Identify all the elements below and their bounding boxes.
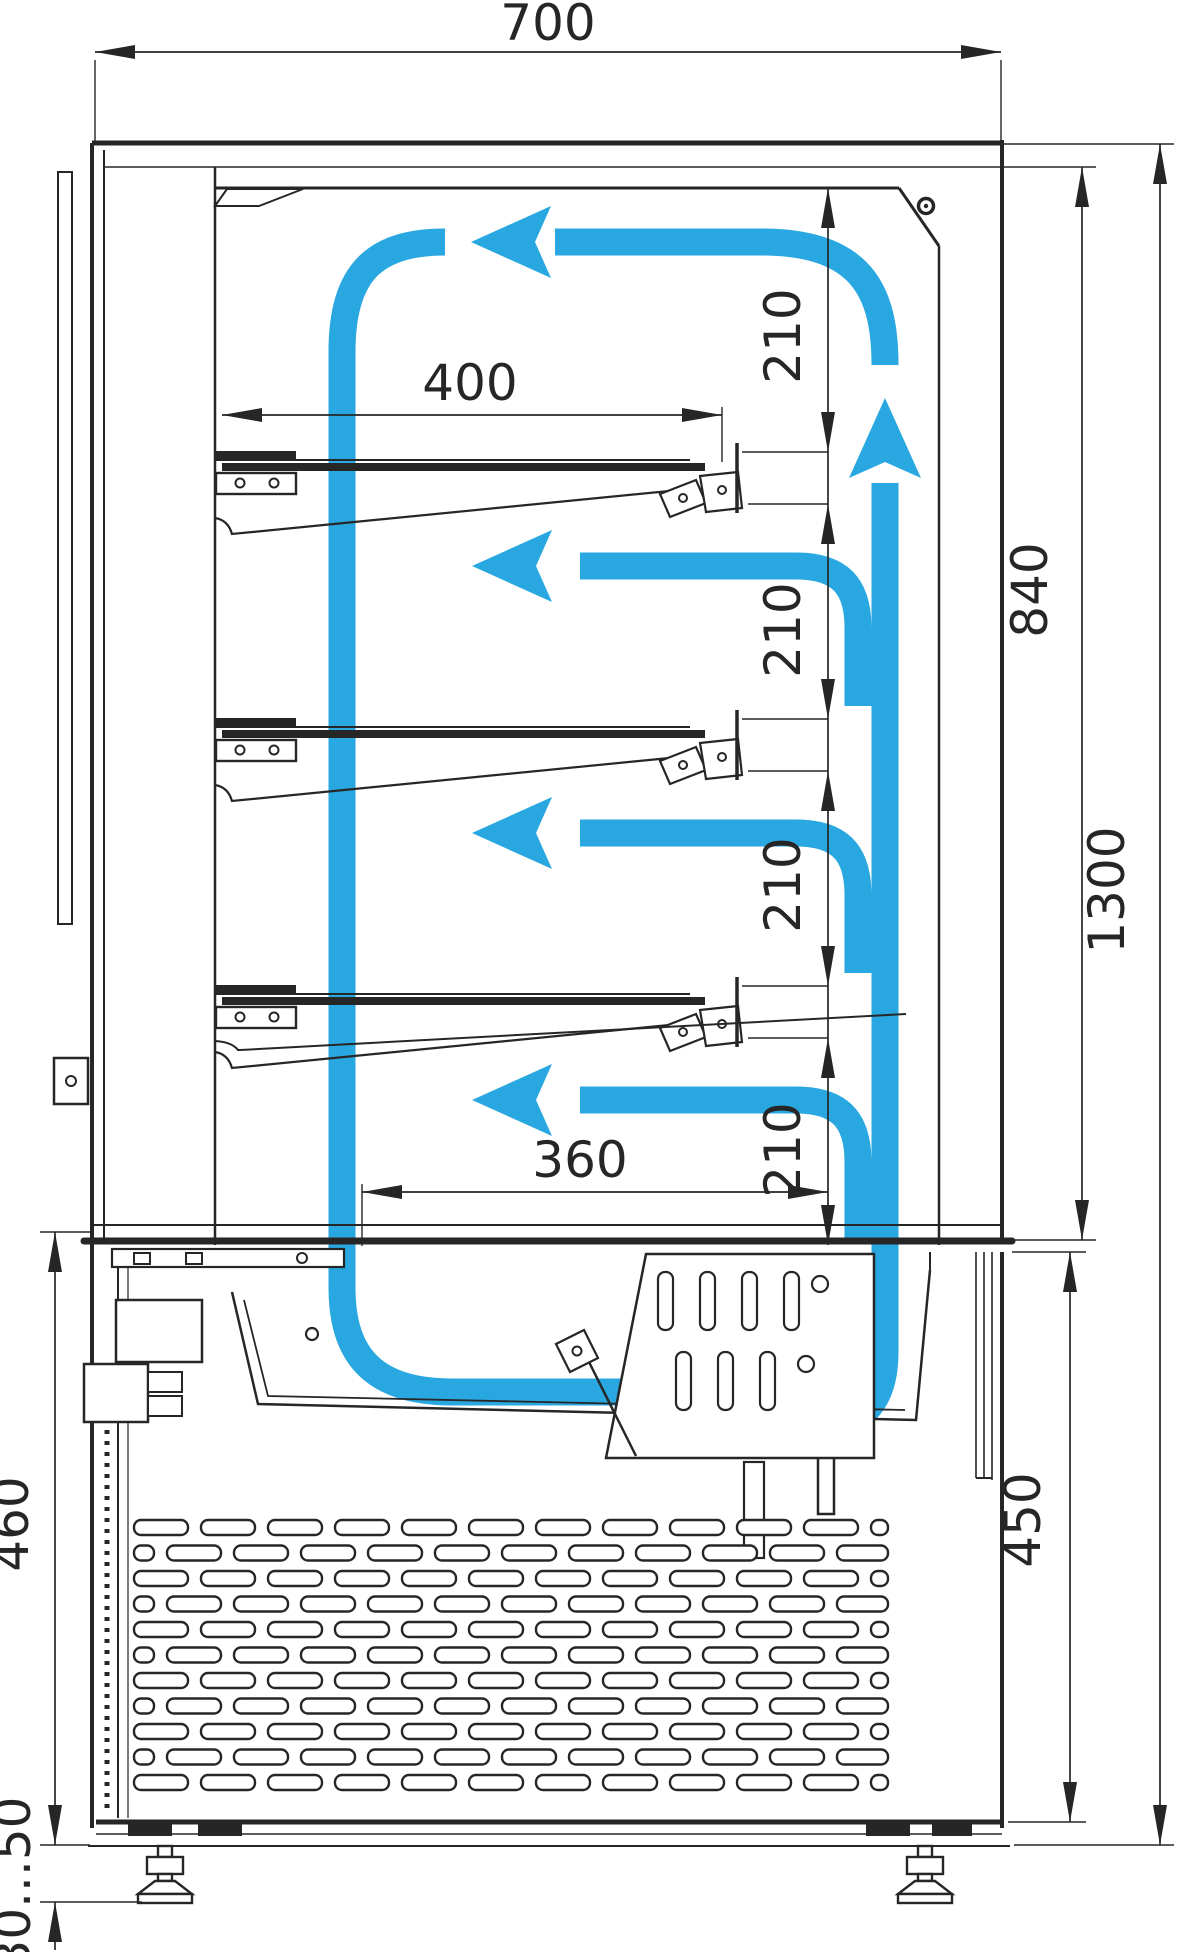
shroud-slot <box>658 1272 673 1330</box>
front-glass-chamfer <box>899 188 939 246</box>
grille-louver <box>301 1546 355 1561</box>
grille-louver <box>368 1597 422 1612</box>
grille-louver <box>703 1750 757 1765</box>
grille-louver <box>804 1622 858 1637</box>
shroud-slot <box>700 1272 715 1330</box>
grille-louver <box>670 1622 724 1637</box>
grille-louver <box>335 1520 389 1535</box>
dim-450-label: 450 <box>994 1472 1052 1567</box>
grille-louver <box>703 1546 757 1561</box>
shelf-3 <box>214 977 742 1068</box>
grille-louver <box>737 1775 791 1790</box>
grille-louver <box>268 1520 322 1535</box>
grille-louver <box>871 1520 888 1535</box>
base-screw-icon <box>306 1328 318 1340</box>
grille-louver <box>335 1775 389 1790</box>
grille-louver <box>670 1571 724 1586</box>
grille-louver <box>335 1622 389 1637</box>
grille-louver <box>469 1622 523 1637</box>
grille-louver <box>703 1699 757 1714</box>
grille-louver <box>368 1648 422 1663</box>
grille-louver <box>502 1699 556 1714</box>
grille-louver <box>368 1546 422 1561</box>
grille-louver <box>134 1597 154 1612</box>
ventilation-grille <box>134 1520 888 1790</box>
machinery-base <box>84 1249 1010 1903</box>
grille-louver <box>402 1775 456 1790</box>
grille-louver <box>134 1775 188 1790</box>
grille-louver <box>201 1571 255 1586</box>
ceiling-lamp-cover <box>215 189 303 206</box>
grille-louver <box>804 1775 858 1790</box>
grille-louver <box>670 1673 724 1688</box>
grille-louver <box>703 1597 757 1612</box>
grille-louver <box>402 1520 456 1535</box>
grille-louver <box>435 1699 489 1714</box>
grille-louver <box>134 1520 188 1535</box>
grille-louver <box>335 1724 389 1739</box>
grille-louver <box>469 1571 523 1586</box>
grille-louver <box>603 1724 657 1739</box>
dim-210-label-2: 210 <box>754 582 812 677</box>
clamp-screw-icon <box>718 486 726 494</box>
grille-louver <box>737 1673 791 1688</box>
adjustable-foot-left <box>138 1846 192 1903</box>
foot-mount-plate <box>932 1824 972 1836</box>
grille-louver <box>837 1699 888 1714</box>
grille-louver <box>201 1775 255 1790</box>
strut-clip-hole <box>573 1347 582 1356</box>
dim-210-label-1: 210 <box>754 288 812 383</box>
grille-louver <box>536 1520 590 1535</box>
grille-louver <box>536 1571 590 1586</box>
shroud-slot <box>718 1352 733 1410</box>
grille-louver <box>636 1546 690 1561</box>
grille-louver <box>435 1597 489 1612</box>
shroud-hole <box>812 1276 828 1292</box>
grille-louver <box>335 1673 389 1688</box>
grille-louver <box>569 1699 623 1714</box>
bracket-tab <box>134 1253 150 1264</box>
airflow-shelf1-branch <box>580 566 858 706</box>
grille-louver <box>636 1597 690 1612</box>
bracket-hole <box>236 479 245 488</box>
grille-louver <box>201 1673 255 1688</box>
airflow-riser-up-arrow-icon <box>849 398 921 478</box>
shroud-leg <box>744 1462 764 1558</box>
grille-louver <box>737 1622 791 1637</box>
grille-louver <box>871 1571 888 1586</box>
shelf-rear-tab <box>214 985 296 994</box>
airflow-top-arrow-icon <box>471 206 551 278</box>
grille-louver <box>469 1520 523 1535</box>
grille-louver <box>670 1520 724 1535</box>
airflow-shelf2-branch <box>580 833 858 973</box>
shelf-1 <box>214 443 742 534</box>
grille-louver <box>201 1724 255 1739</box>
clamp-screw-icon <box>679 761 687 769</box>
grille-louver <box>603 1520 657 1535</box>
grille-louver <box>167 1597 221 1612</box>
thermostat-box <box>116 1300 202 1362</box>
grille-louver <box>435 1648 489 1663</box>
dim-700: 700 <box>95 0 1001 143</box>
grille-louver <box>368 1699 422 1714</box>
clamp-screw-icon <box>679 1028 687 1036</box>
front-corner-screw-center <box>924 204 928 208</box>
valve-port <box>148 1372 182 1392</box>
grille-louver <box>603 1622 657 1637</box>
grille-louver <box>201 1622 255 1637</box>
bracket-hole <box>270 746 279 755</box>
dim-840-label: 840 <box>1001 542 1059 637</box>
grille-louver <box>804 1724 858 1739</box>
dim-450: 450 <box>994 1252 1086 1822</box>
grille-louver <box>502 1648 556 1663</box>
grille-louver <box>201 1520 255 1535</box>
bracket-hole <box>236 1013 245 1022</box>
grille-louver <box>569 1750 623 1765</box>
foot-mount-plate <box>128 1824 172 1836</box>
dim-460: 460 <box>0 1232 94 1845</box>
grille-louver <box>871 1724 888 1739</box>
grille-louver <box>134 1648 154 1663</box>
grille-louver <box>234 1597 288 1612</box>
grille-louver <box>368 1750 422 1765</box>
shelf-2 <box>214 710 742 801</box>
grille-louver <box>804 1673 858 1688</box>
grille-louver <box>871 1622 888 1637</box>
grille-louver <box>536 1622 590 1637</box>
foot-mount-plate <box>866 1824 910 1836</box>
shroud-slot <box>760 1352 775 1410</box>
grille-louver <box>837 1546 888 1561</box>
grille-louver <box>770 1597 824 1612</box>
bracket-tab <box>186 1253 202 1264</box>
grille-louver <box>268 1775 322 1790</box>
shelf-bracket <box>216 740 296 761</box>
grille-louver <box>469 1775 523 1790</box>
grille-louver <box>770 1750 824 1765</box>
grille-louver <box>402 1724 456 1739</box>
rear-cladding-panel <box>58 172 72 924</box>
grille-louver <box>402 1571 456 1586</box>
grille-louver <box>737 1520 791 1535</box>
shelf-rear-tab <box>214 718 296 727</box>
grille-louver <box>402 1673 456 1688</box>
grille-louver <box>167 1648 221 1663</box>
grille-louver <box>536 1775 590 1790</box>
grille-louver <box>569 1546 623 1561</box>
grille-louver <box>435 1750 489 1765</box>
grille-louver <box>837 1648 888 1663</box>
grille-louver <box>737 1724 791 1739</box>
dim-460-label: 460 <box>0 1476 40 1571</box>
dim-400: 400 <box>222 354 722 462</box>
grille-louver <box>134 1673 188 1688</box>
grille-louver <box>536 1673 590 1688</box>
grille-louver <box>502 1750 556 1765</box>
grille-louver <box>301 1750 355 1765</box>
grille-louver <box>134 1546 154 1561</box>
deck-glass-sloped <box>215 1014 906 1050</box>
grille-louver <box>167 1699 221 1714</box>
grille-louver <box>871 1775 888 1790</box>
dim-210-label-3: 210 <box>754 837 812 932</box>
dim-1300: 1300 <box>994 144 1174 1845</box>
dim-210-chain: 210 210 210 210 <box>742 188 835 1245</box>
airflow-shelf3-arrow-icon <box>472 1064 552 1136</box>
grille-louver <box>469 1724 523 1739</box>
grille-louver <box>636 1648 690 1663</box>
grille-louver <box>569 1597 623 1612</box>
rear-inlet-knob <box>66 1076 76 1086</box>
grille-louver <box>603 1571 657 1586</box>
cabinet-structure <box>54 140 1012 1903</box>
grille-louver <box>268 1724 322 1739</box>
grille-louver <box>134 1699 154 1714</box>
grille-louver <box>268 1571 322 1586</box>
grille-louver <box>636 1750 690 1765</box>
grille-louver <box>134 1724 188 1739</box>
dim-840: 840 <box>104 167 1096 1240</box>
dim-360-label: 360 <box>532 1131 627 1189</box>
grille-louver <box>167 1546 221 1561</box>
grille-louver <box>234 1546 288 1561</box>
bracket-hole <box>270 479 279 488</box>
grille-louver <box>770 1546 824 1561</box>
dim-1300-label: 1300 <box>1078 826 1136 953</box>
grille-louver <box>335 1571 389 1586</box>
shelf-bracket <box>216 473 296 494</box>
display-case-section-diagram: 700 400 360 <box>0 0 1179 1952</box>
grille-louver <box>737 1571 791 1586</box>
clamp-screw-icon <box>679 494 687 502</box>
grille-louver <box>234 1699 288 1714</box>
grille-louver <box>268 1673 322 1688</box>
shroud-slot <box>784 1272 799 1330</box>
shroud-slot <box>676 1352 691 1410</box>
shelf-bracket <box>216 1007 296 1028</box>
grille-louver <box>469 1673 523 1688</box>
grille-louver <box>134 1622 188 1637</box>
grille-louver <box>134 1750 154 1765</box>
airflow-shelf1-arrow-icon <box>472 530 552 602</box>
clamp-screw-icon <box>718 753 726 761</box>
grille-louver <box>871 1673 888 1688</box>
dim-700-label: 700 <box>500 0 595 52</box>
grille-louver <box>301 1648 355 1663</box>
grille-louver <box>670 1775 724 1790</box>
grille-louver <box>804 1571 858 1586</box>
shelf-rear-tab <box>214 451 296 460</box>
valve-box <box>84 1364 148 1422</box>
grille-louver <box>636 1699 690 1714</box>
bracket-hole <box>236 746 245 755</box>
shroud-hole <box>798 1356 814 1372</box>
valve-port <box>148 1396 182 1416</box>
grille-louver <box>301 1699 355 1714</box>
adjustable-foot-right <box>898 1846 952 1903</box>
grille-louver <box>603 1673 657 1688</box>
dim-210-label-4: 210 <box>754 1102 812 1197</box>
grille-louver <box>703 1648 757 1663</box>
grille-louver <box>804 1520 858 1535</box>
grille-louver <box>770 1648 824 1663</box>
grille-louver <box>569 1648 623 1663</box>
grille-louver <box>435 1546 489 1561</box>
bracket-hole <box>270 1013 279 1022</box>
fan-shroud-plate <box>606 1254 874 1458</box>
dim-400-label: 400 <box>422 354 517 412</box>
grille-louver <box>670 1724 724 1739</box>
airflow-top-run <box>555 242 885 365</box>
grille-louver <box>301 1597 355 1612</box>
grille-louver <box>234 1648 288 1663</box>
grille-louver <box>770 1699 824 1714</box>
grille-louver <box>603 1775 657 1790</box>
airflow-shelf2-arrow-icon <box>472 797 552 869</box>
foot-mount-plate <box>198 1824 242 1836</box>
grille-louver <box>837 1750 888 1765</box>
shroud-slot <box>742 1272 757 1330</box>
dim-foot-range-label: 30...50 <box>0 1797 42 1952</box>
grille-louver <box>167 1750 221 1765</box>
grille-louver <box>268 1622 322 1637</box>
grille-louver <box>837 1597 888 1612</box>
grille-louver <box>234 1750 288 1765</box>
grille-louver <box>402 1622 456 1637</box>
grille-louver <box>502 1597 556 1612</box>
grille-louver <box>536 1724 590 1739</box>
bracket-screw-icon <box>297 1253 307 1263</box>
grille-louver <box>502 1546 556 1561</box>
grille-louver <box>134 1571 188 1586</box>
